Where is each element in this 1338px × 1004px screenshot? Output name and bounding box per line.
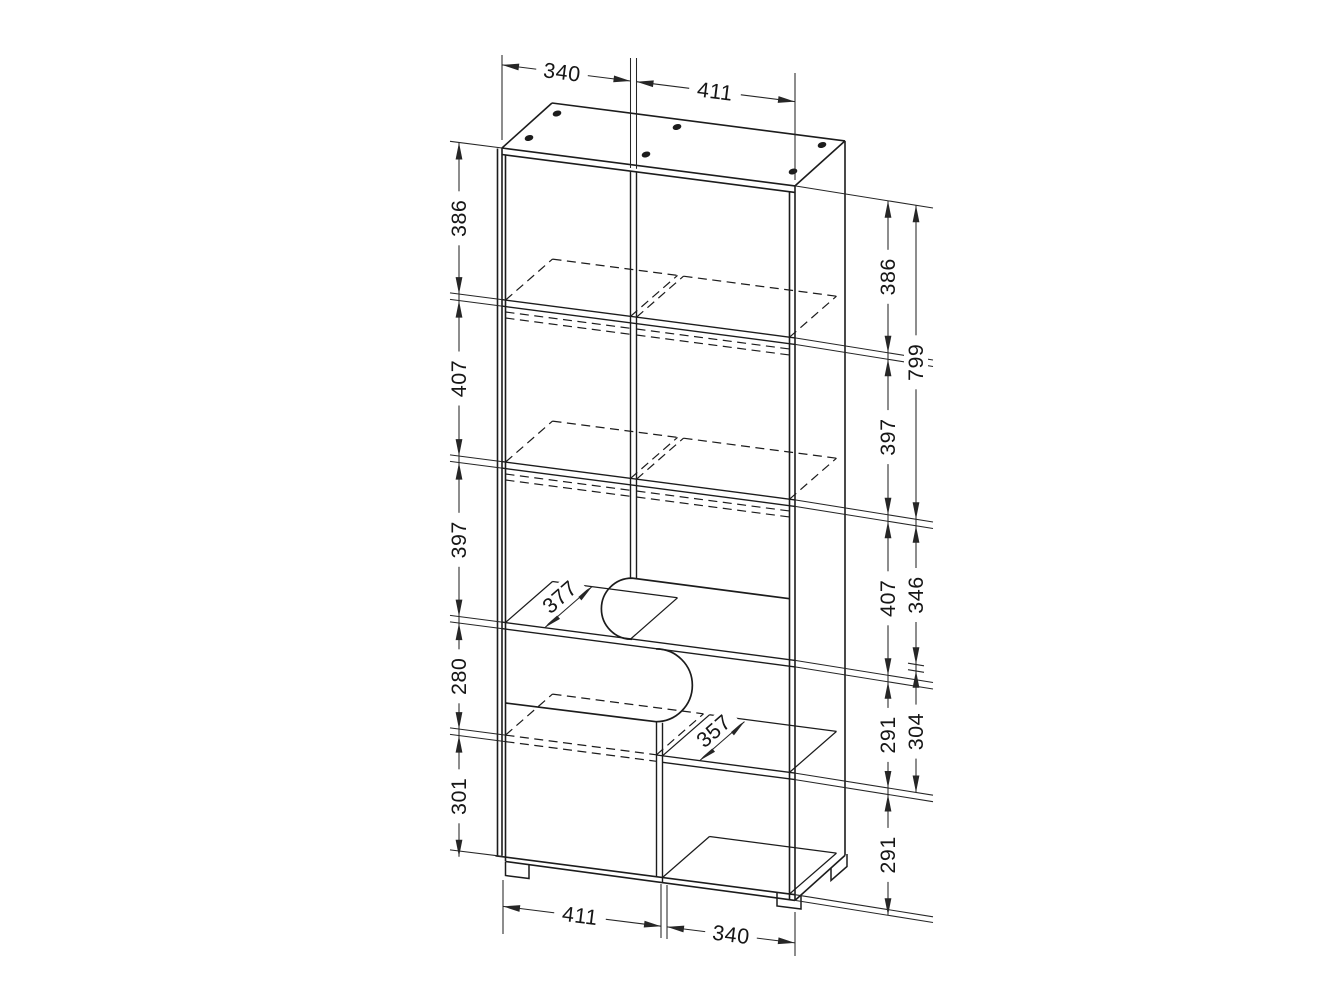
dim-label-left-397: 397 (447, 521, 471, 558)
dim-label-left-301: 301 (447, 778, 471, 815)
dim-label-top-411: 411 (696, 77, 734, 105)
dim-label-bottom-411: 411 (561, 902, 599, 930)
dim-label-left-386: 386 (447, 200, 471, 237)
dim-label-bottom-340: 340 (711, 921, 751, 949)
bottom-front-edge-top (496, 856, 796, 895)
bottom-front-edge-bottom (506, 862, 796, 901)
dim-bottom: 411 340 (503, 880, 796, 956)
dim-label-top-340: 340 (542, 58, 582, 86)
dim-label-right-386: 386 (876, 258, 900, 295)
dividers (631, 171, 663, 883)
dim-right-outer: 799 346 304 (904, 205, 928, 792)
back-right-foot (831, 854, 847, 881)
upper-curved-door (601, 578, 789, 639)
top-panel (502, 103, 845, 192)
side-panels (496, 141, 846, 901)
dim-right-extensions (795, 186, 933, 923)
dim-label-left-407: 407 (447, 360, 471, 397)
dim-label-right-304: 304 (904, 713, 928, 750)
dim-label-right-397: 397 (876, 418, 900, 455)
dim-label-right-291-upper: 291 (876, 716, 900, 753)
dim-label-right-799: 799 (904, 344, 928, 381)
dim-right-inner: 386 397 407 291 291 (876, 201, 900, 916)
cabinet-structure (496, 103, 848, 909)
dim-label-right-407: 407 (876, 580, 900, 617)
dim-label-right-346: 346 (904, 576, 928, 613)
furniture-dimension-diagram: 340 411 411 (0, 0, 1338, 1004)
dim-label-left-280: 280 (447, 658, 471, 695)
drawing-canvas: 340 411 411 (0, 0, 1338, 1004)
dim-depth: 377 357 (532, 571, 746, 763)
hidden-shelves (506, 259, 837, 761)
dim-label-right-291-lower: 291 (876, 836, 900, 873)
bottom-side-edge (795, 855, 845, 900)
dim-top: 340 411 (502, 55, 796, 180)
dimensions: 340 411 411 (447, 55, 933, 956)
